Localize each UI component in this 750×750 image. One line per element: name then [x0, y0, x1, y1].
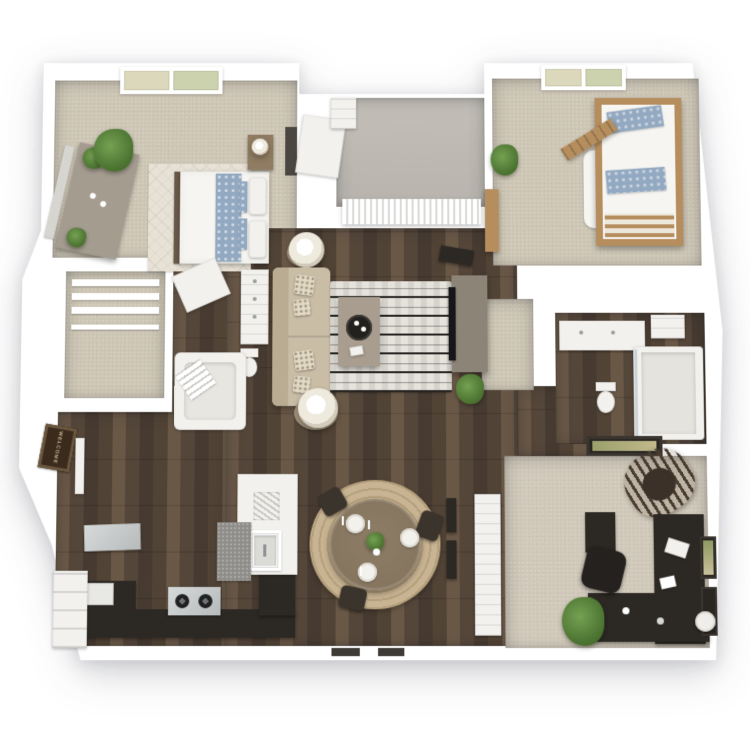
- nightstand-lamp: [252, 139, 269, 156]
- welcome-mat-text: WELCOME: [51, 431, 63, 465]
- door-threshold: [378, 648, 404, 656]
- office-closet-doors: [474, 494, 501, 636]
- pantry-shelves: [52, 571, 87, 648]
- round-stool: [695, 611, 716, 631]
- closet-shelf: [72, 279, 160, 286]
- media-console: [451, 275, 487, 372]
- art-canvas: [592, 441, 656, 451]
- bunk-guard-rails: [605, 214, 675, 237]
- throw-pillow: [293, 274, 316, 296]
- cutlery: [342, 516, 344, 525]
- kitchen-counter-return: [259, 571, 296, 616]
- door-threshold: [331, 648, 359, 656]
- throw-pillow: [293, 298, 312, 316]
- bedroom2-window: [541, 65, 626, 90]
- table-lamp-north: [289, 232, 325, 267]
- closet-shelf: [72, 293, 160, 300]
- window-pane: [124, 71, 169, 90]
- window-pane: [585, 69, 622, 86]
- room-walk-in-closet: [64, 271, 165, 398]
- bunk-pillow-mid: [605, 167, 666, 194]
- hall-to-bedroom2: [481, 299, 533, 390]
- tall-plant: [93, 129, 133, 172]
- desk-mug: [622, 607, 629, 614]
- burner: [198, 594, 212, 608]
- hall-wall-art: [446, 540, 456, 578]
- table-lamp-south: [298, 388, 338, 428]
- bed-pillow: [249, 177, 266, 214]
- blue-pillow: [239, 218, 247, 249]
- burner: [175, 594, 189, 608]
- blue-duvet-band: [215, 174, 241, 262]
- bath2-vanity: [559, 321, 645, 351]
- window-pane: [173, 71, 218, 90]
- desk-bottom-wing: [588, 593, 710, 642]
- water-heater: [331, 98, 357, 129]
- bath2-toilet-bowl: [597, 391, 615, 413]
- bath2-tub-shower: [633, 346, 704, 440]
- sofa-seat-seam: [288, 336, 330, 338]
- room-balcony: [336, 98, 484, 207]
- closet-rod: [71, 325, 159, 330]
- place-setting: [358, 563, 377, 582]
- dish-rack: [253, 492, 279, 520]
- blue-pillow: [239, 181, 247, 212]
- sink-faucet: [263, 544, 266, 556]
- fridge-top: [85, 583, 114, 605]
- art-canvas: [703, 540, 714, 574]
- rocker-seat: [636, 462, 682, 507]
- bedroom2-wall-shelf: [485, 189, 499, 252]
- console-plant: [456, 374, 484, 404]
- hall-wall-art: [446, 498, 456, 532]
- sofa-back-cushions: [272, 267, 289, 406]
- bath2-linen-shelf: [651, 315, 685, 339]
- serving-tray: [346, 315, 372, 341]
- gas-range: [168, 587, 221, 615]
- closet-shelf: [71, 307, 159, 314]
- place-setting: [400, 528, 419, 547]
- tv: [449, 287, 456, 360]
- tray-cups: [354, 321, 359, 326]
- vanity-faucet: [253, 279, 257, 283]
- shower-glass: [634, 349, 638, 437]
- place-setting: [346, 514, 365, 533]
- entry-door: [75, 438, 85, 494]
- bedroom2-plant: [490, 144, 518, 175]
- kitchen-runner-rug: [217, 522, 252, 581]
- window-pane: [545, 69, 582, 86]
- office-plant: [562, 597, 605, 646]
- tub2-basin: [641, 352, 696, 434]
- office-art-right: [700, 536, 717, 578]
- bed-pillow: [249, 220, 266, 257]
- floorplan-3d-render: WELCOME: [0, 9, 750, 750]
- range-hood: [84, 523, 141, 551]
- master-bedroom-window: [120, 67, 223, 94]
- bath2-toilet-tank: [596, 382, 616, 391]
- farmhouse-sink: [249, 530, 281, 570]
- throw-pillow: [293, 349, 315, 371]
- floorplan-scene: WELCOME: [0, 0, 750, 750]
- centerpiece-vase: [373, 548, 380, 555]
- vertical-blinds-sliding-door: [342, 199, 481, 224]
- bath2-faucets: [579, 331, 583, 335]
